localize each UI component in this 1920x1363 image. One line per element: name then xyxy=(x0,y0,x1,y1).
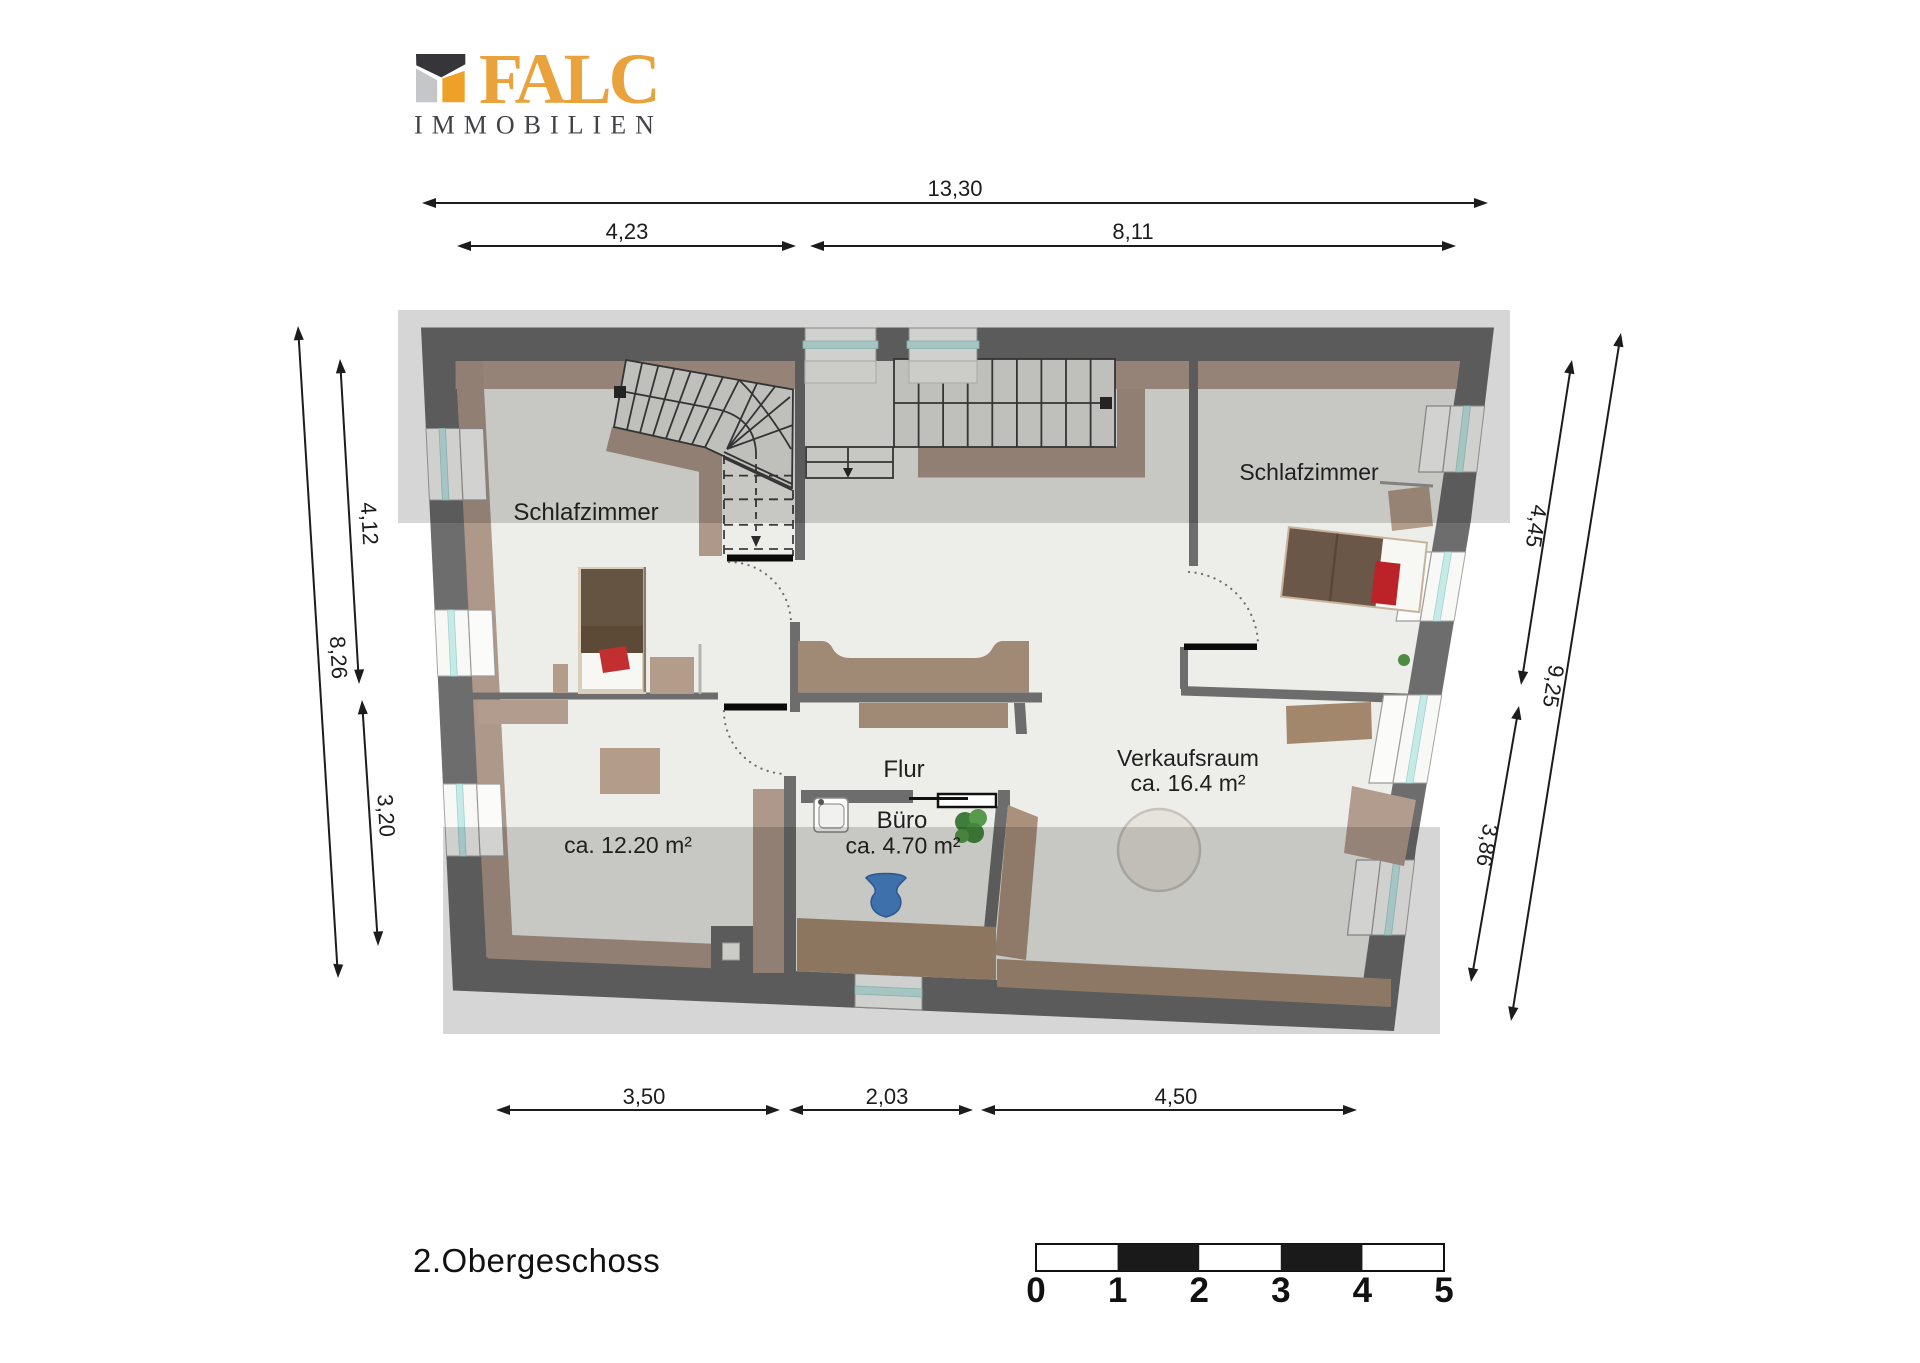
svg-text:FALC: FALC xyxy=(479,39,658,119)
svg-text:2.Obergeschoss: 2.Obergeschoss xyxy=(413,1242,660,1279)
svg-text:4: 4 xyxy=(1353,1271,1373,1310)
svg-text:IMMOBILIEN: IMMOBILIEN xyxy=(414,111,663,140)
svg-text:8,11: 8,11 xyxy=(1112,219,1153,244)
svg-text:ca. 4.70 m²: ca. 4.70 m² xyxy=(845,833,960,859)
svg-text:3,50: 3,50 xyxy=(623,1084,666,1109)
svg-text:Flur: Flur xyxy=(883,756,924,783)
svg-text:2,03: 2,03 xyxy=(866,1084,909,1109)
svg-text:1: 1 xyxy=(1108,1271,1127,1310)
svg-text:ca. 12.20 m²: ca. 12.20 m² xyxy=(564,832,692,858)
svg-text:Schlafzimmer: Schlafzimmer xyxy=(513,499,658,526)
svg-text:ca. 16.4 m²: ca. 16.4 m² xyxy=(1130,770,1245,796)
svg-text:2: 2 xyxy=(1189,1271,1208,1310)
svg-text:Büro: Büro xyxy=(877,807,928,834)
svg-text:4,12: 4,12 xyxy=(356,501,383,545)
svg-text:0: 0 xyxy=(1026,1271,1045,1310)
svg-text:4,23: 4,23 xyxy=(606,219,649,244)
svg-text:Schlafzimmer: Schlafzimmer xyxy=(1239,459,1379,485)
svg-text:13,30: 13,30 xyxy=(927,176,982,201)
svg-text:Verkaufsraum: Verkaufsraum xyxy=(1117,745,1259,771)
svg-text:3,20: 3,20 xyxy=(372,793,399,837)
svg-text:5: 5 xyxy=(1434,1271,1453,1310)
svg-text:3: 3 xyxy=(1271,1271,1290,1310)
svg-text:4,50: 4,50 xyxy=(1155,1084,1198,1109)
svg-text:8,26: 8,26 xyxy=(325,635,353,679)
